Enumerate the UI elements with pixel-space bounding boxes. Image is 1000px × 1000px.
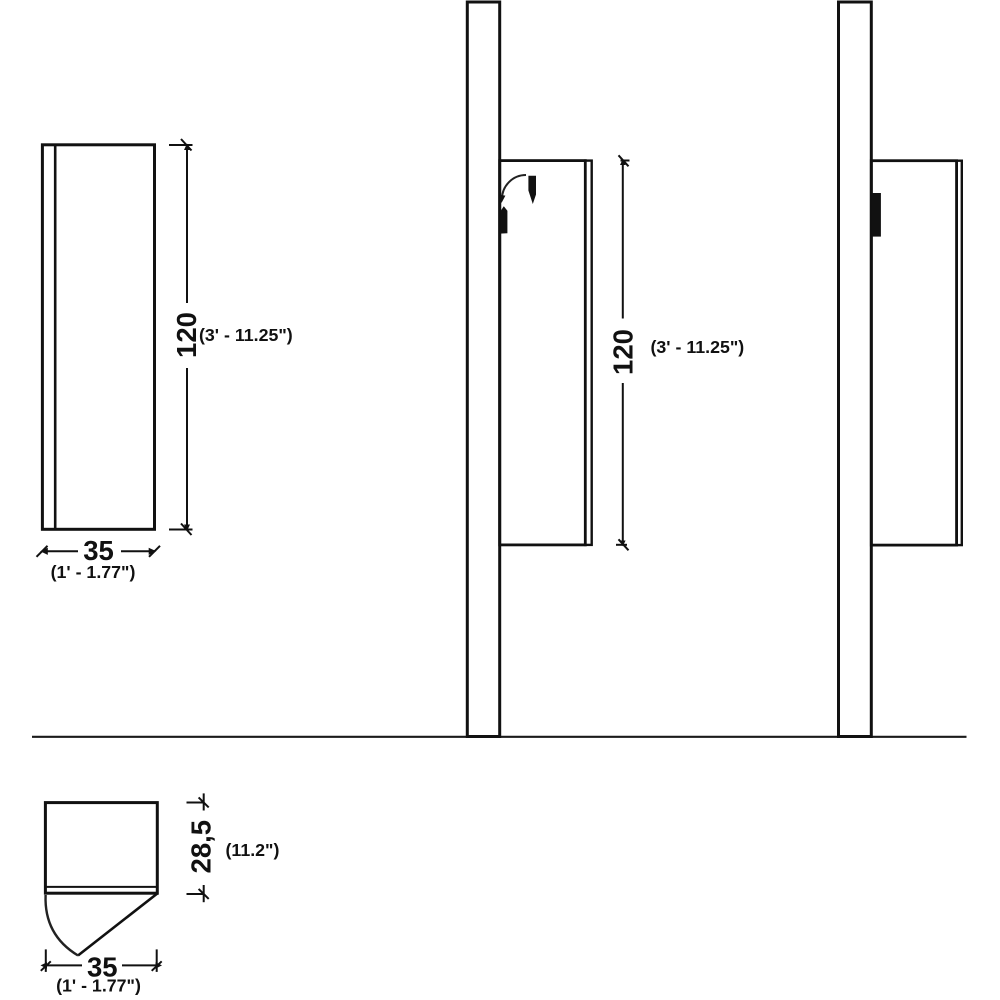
svg-text:28,5: 28,5 <box>185 820 216 874</box>
svg-text:(1' - 1.77"): (1' - 1.77") <box>56 976 141 996</box>
svg-text:(3' - 11.25"): (3' - 11.25") <box>651 337 745 357</box>
svg-text:(3' - 11.25"): (3' - 11.25") <box>199 325 293 345</box>
svg-text:120: 120 <box>171 312 202 358</box>
svg-text:120: 120 <box>608 329 639 375</box>
svg-text:(11.2"): (11.2") <box>226 840 280 860</box>
svg-text:(1' - 1.77"): (1' - 1.77") <box>51 562 136 582</box>
